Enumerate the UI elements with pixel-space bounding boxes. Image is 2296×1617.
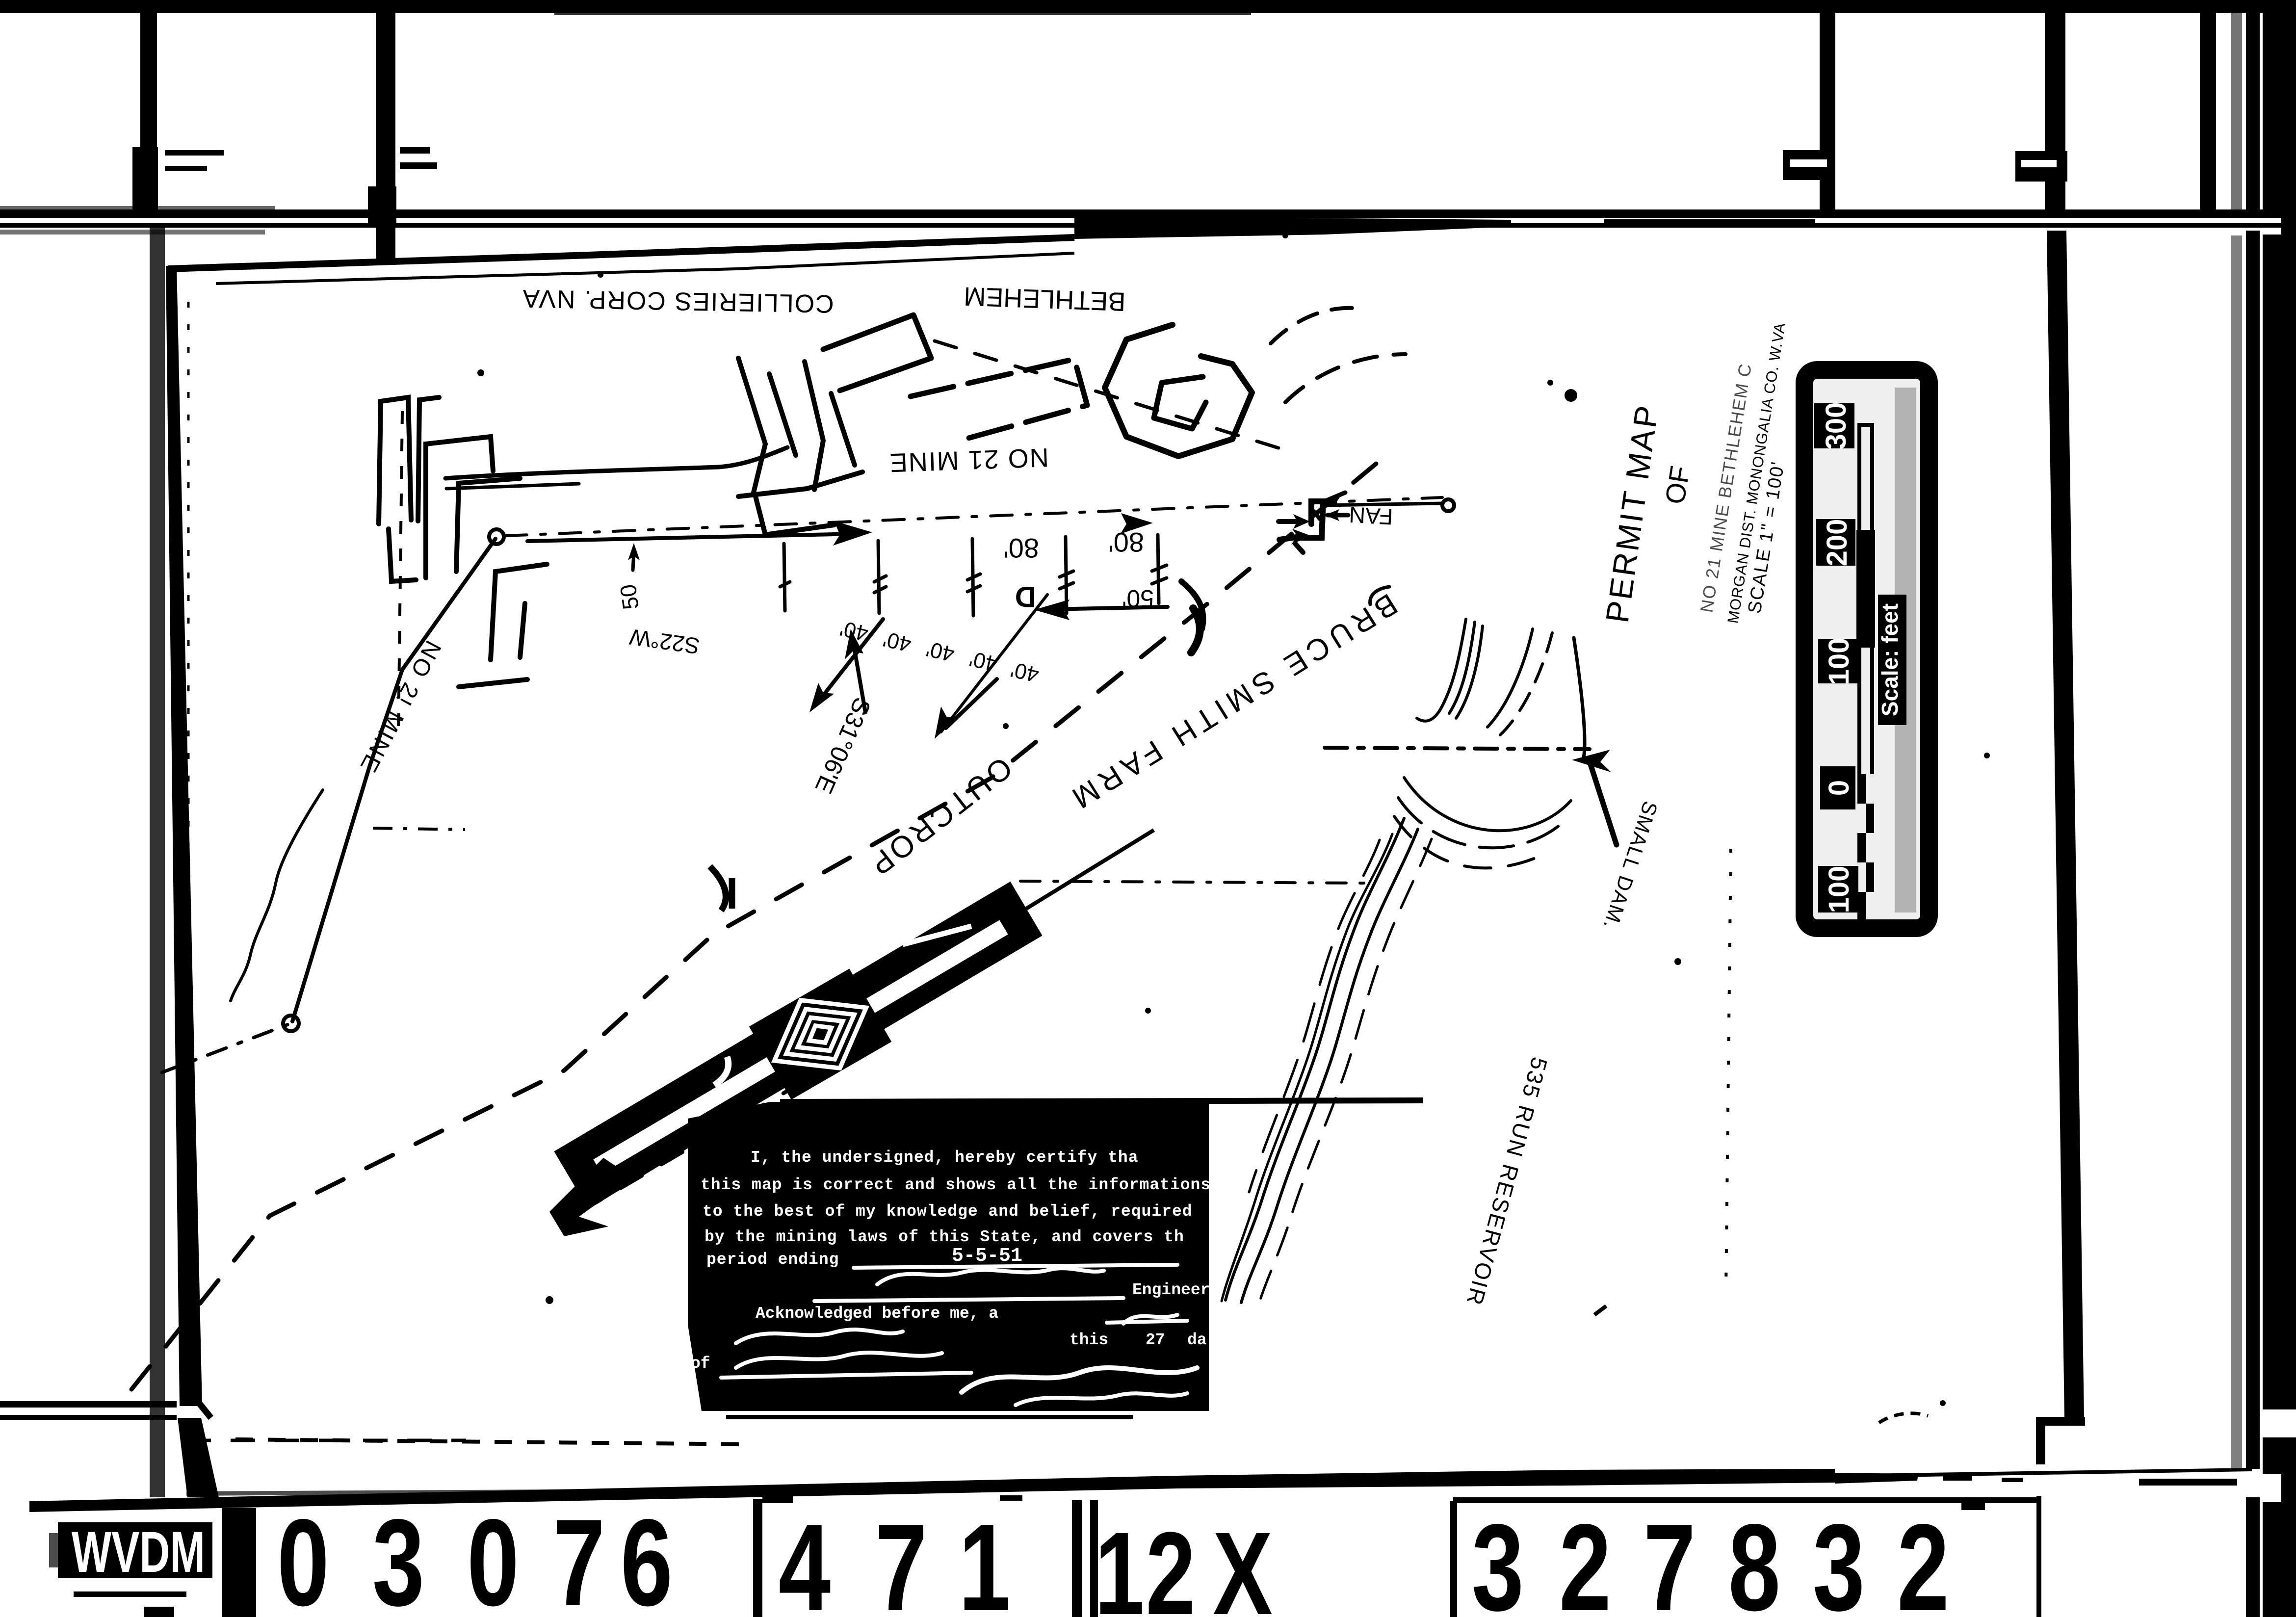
svg-text:200: 200 xyxy=(1821,519,1853,567)
svg-text:300: 300 xyxy=(1820,402,1852,450)
svg-text:1: 1 xyxy=(959,1499,1011,1617)
svg-text:Acknowledged before me, a: Acknowledged before me, a xyxy=(756,1304,998,1323)
svg-text:3: 3 xyxy=(372,1494,425,1617)
svg-text:this: this xyxy=(1070,1331,1108,1349)
svg-text:7: 7 xyxy=(1644,1499,1696,1617)
svg-text:I, the undersigned, hereby cer: I, the undersigned, hereby certify tha xyxy=(751,1148,1139,1167)
svg-text:80': 80' xyxy=(1108,527,1144,558)
svg-text:100: 100 xyxy=(1823,866,1855,913)
svg-text:4: 4 xyxy=(779,1499,831,1617)
svg-text:0: 0 xyxy=(277,1494,330,1617)
svg-text:FAN: FAN xyxy=(1348,502,1393,530)
svg-text:to the best of my knowledge an: to the best of my knowledge and belief, … xyxy=(703,1202,1193,1221)
svg-text:D: D xyxy=(1015,580,1036,613)
svg-text:7: 7 xyxy=(875,1499,928,1617)
svg-text:50: 50 xyxy=(615,583,644,611)
svg-text:80': 80' xyxy=(1003,533,1039,564)
svg-text:7: 7 xyxy=(553,1494,605,1617)
svg-text:0: 0 xyxy=(1823,780,1855,796)
svg-text:100: 100 xyxy=(1823,638,1855,685)
svg-text:period ending: period ending xyxy=(706,1251,839,1269)
svg-text:2: 2 xyxy=(1146,1508,1195,1617)
svg-text:NO 21 MINE: NO 21 MINE xyxy=(888,443,1049,477)
svg-text:2: 2 xyxy=(1559,1499,1612,1617)
svg-text:6: 6 xyxy=(621,1494,673,1617)
svg-text:8: 8 xyxy=(1728,1499,1781,1617)
svg-text:of: of xyxy=(691,1355,710,1373)
svg-text:0: 0 xyxy=(467,1494,520,1617)
svg-text:da: da xyxy=(1187,1331,1207,1349)
svg-text:Engineer: Engineer xyxy=(1132,1281,1210,1299)
svg-text:COLLIERIES CORP. NVA: COLLIERIES CORP. NVA xyxy=(522,284,834,318)
svg-text:1: 1 xyxy=(1095,1508,1144,1617)
svg-text:BETHLEHEM: BETHLEHEM xyxy=(963,281,1126,316)
svg-text:5-5-51: 5-5-51 xyxy=(952,1245,1022,1267)
svg-text:27: 27 xyxy=(1146,1331,1165,1349)
svg-text:by the mining laws of this Sta: by the mining laws of this State, and co… xyxy=(704,1228,1184,1246)
svg-text:3: 3 xyxy=(1813,1499,1865,1617)
svg-text:Scale: feet: Scale: feet xyxy=(1877,603,1903,716)
svg-text:3: 3 xyxy=(1472,1499,1524,1617)
svg-text:X: X xyxy=(1213,1508,1273,1617)
svg-text:2: 2 xyxy=(1897,1499,1950,1617)
svg-text:this map is correct and shows: this map is correct and shows all the in… xyxy=(701,1176,1211,1194)
svg-text:WVDM: WVDM xyxy=(72,1520,205,1585)
svg-text:OF: OF xyxy=(1659,464,1696,506)
